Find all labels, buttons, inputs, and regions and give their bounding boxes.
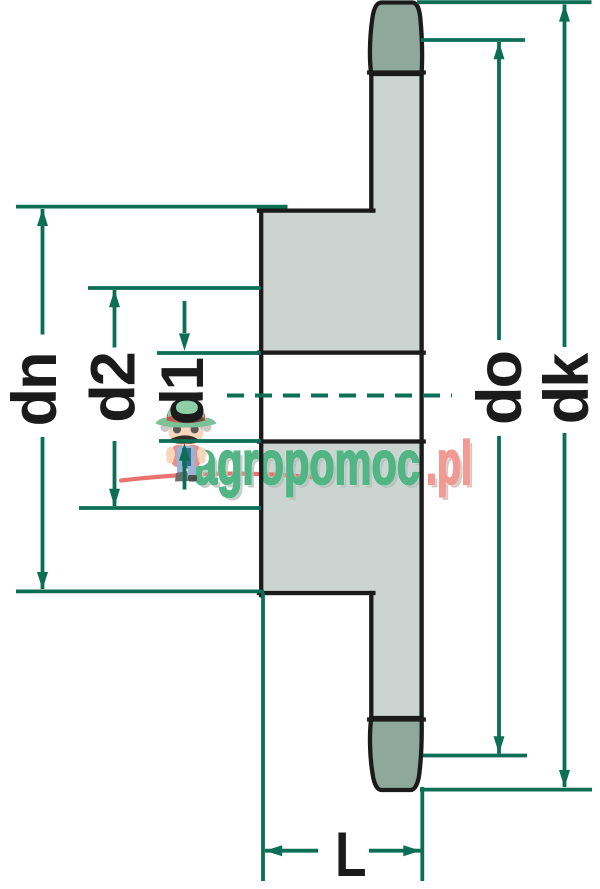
svg-text:dk: dk	[532, 352, 600, 424]
svg-text:do: do	[465, 352, 535, 425]
svg-text:.pl: .pl	[426, 430, 472, 498]
svg-text:dn: dn	[0, 354, 70, 427]
svg-text:d1: d1	[149, 358, 216, 425]
svg-text:d2: d2	[79, 353, 149, 423]
svg-text:L: L	[335, 820, 365, 889]
